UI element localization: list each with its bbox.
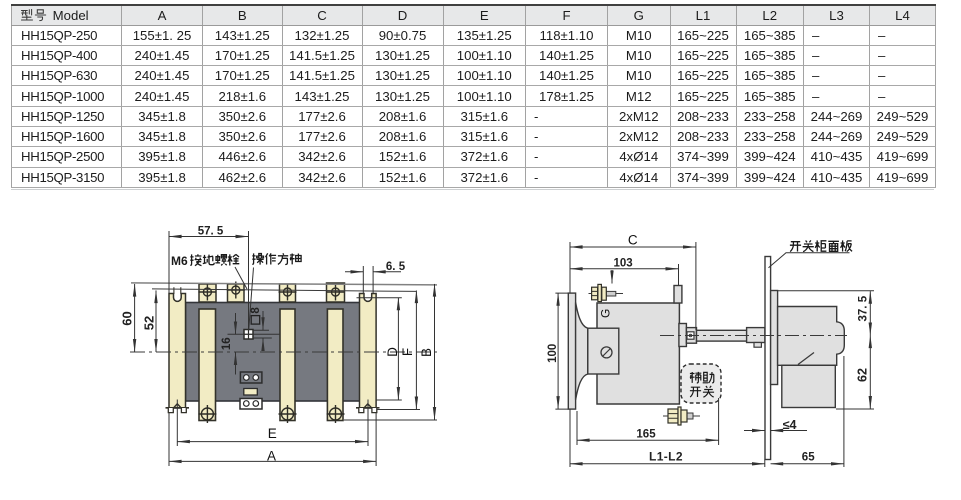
svg-text:A: A xyxy=(267,448,276,463)
svg-text:60: 60 xyxy=(120,311,135,325)
svg-text:E: E xyxy=(268,426,277,441)
svg-text:M6: M6 xyxy=(171,254,188,268)
svg-text:37. 5: 37. 5 xyxy=(858,295,870,321)
svg-text:100: 100 xyxy=(547,344,559,363)
svg-text:8: 8 xyxy=(250,307,262,314)
svg-text:62: 62 xyxy=(856,368,870,382)
svg-text:6. 5: 6. 5 xyxy=(386,261,406,273)
svg-text:C: C xyxy=(628,233,638,248)
svg-text:16: 16 xyxy=(221,337,233,350)
svg-text:57. 5: 57. 5 xyxy=(198,226,224,238)
svg-text:L1-L2: L1-L2 xyxy=(649,450,683,464)
svg-text:65: 65 xyxy=(802,452,815,464)
svg-text:B: B xyxy=(419,348,434,357)
svg-text:G: G xyxy=(599,309,613,318)
svg-text:103: 103 xyxy=(614,257,633,269)
svg-text:F: F xyxy=(400,348,415,356)
svg-text:52: 52 xyxy=(142,316,157,330)
svg-text:165: 165 xyxy=(636,429,656,441)
svg-text:D: D xyxy=(385,347,400,357)
svg-text:≤4: ≤4 xyxy=(783,418,797,432)
